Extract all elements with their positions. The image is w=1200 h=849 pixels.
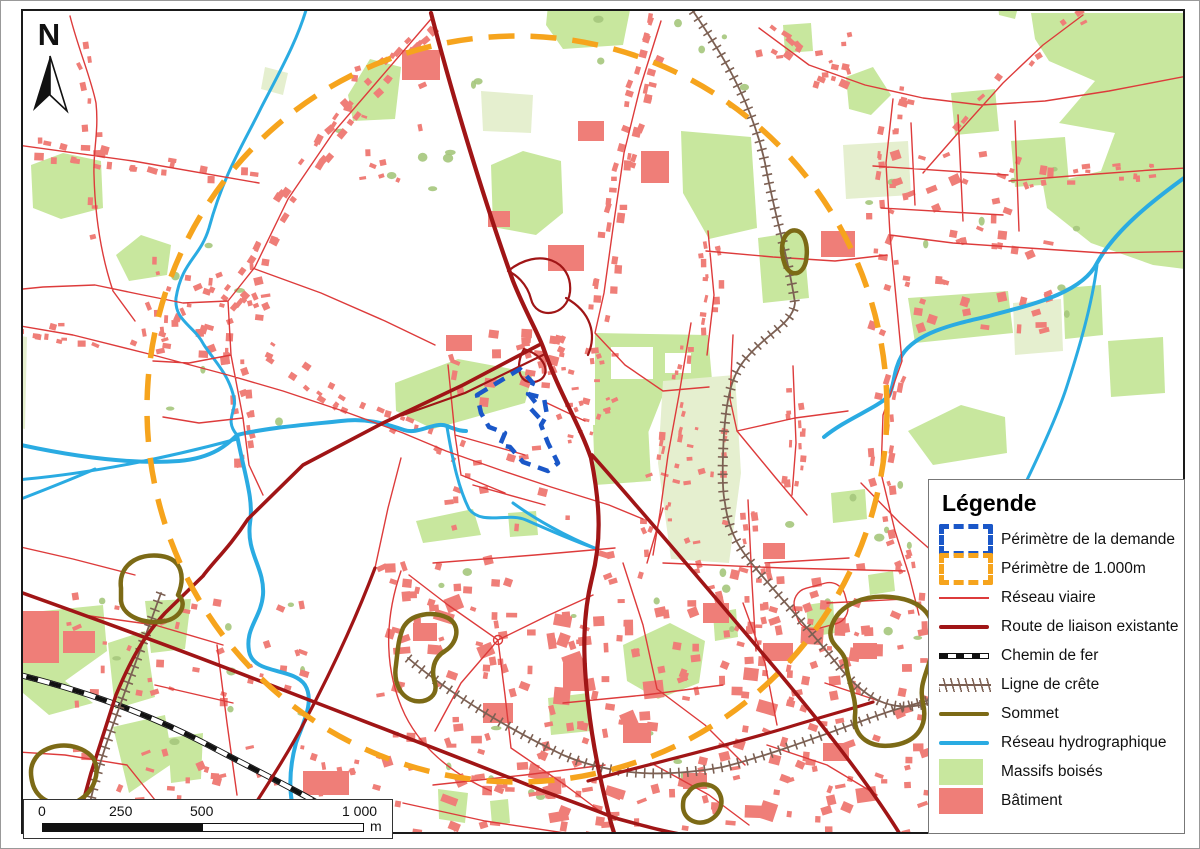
legend-item-sommet: Sommet: [929, 699, 1184, 728]
legend: Légende Périmètre de la demandePérimètre…: [928, 479, 1185, 834]
legend-symbol-sommet-icon: [939, 712, 989, 716]
legend-item-perimetre-demande: Périmètre de la demande: [929, 525, 1184, 554]
north-label: N: [29, 17, 69, 53]
legend-items: Périmètre de la demandePérimètre de 1.00…: [929, 525, 1184, 815]
legend-item-reseau-hydrographique: Réseau hydrographique: [929, 728, 1184, 757]
scale-bar-rule: [42, 823, 364, 832]
north-arrow-icon: [29, 53, 73, 115]
legend-title: Légende: [942, 490, 1184, 517]
legend-symbol-route-liaison-existante-icon: [939, 625, 989, 629]
legend-symbol-massifs-boises-icon: [939, 759, 983, 785]
legend-symbol-perimetre-demande-icon: [939, 524, 993, 556]
legend-item-perimetre-1000m: Périmètre de 1.000m: [929, 554, 1184, 583]
legend-item-label: Ligne de crête: [1001, 676, 1099, 694]
scale-tick-1000: 1 000: [342, 803, 377, 819]
legend-item-ligne-de-crete: Ligne de crête: [929, 670, 1184, 699]
legend-item-label: Périmètre de la demande: [1001, 531, 1175, 549]
legend-item-label: Chemin de fer: [1001, 647, 1098, 665]
north-arrow: N: [29, 17, 85, 121]
legend-item-label: Réseau hydrographique: [1001, 734, 1166, 752]
legend-item-massifs-boises: Massifs boisés: [929, 757, 1184, 786]
legend-item-label: Sommet: [1001, 705, 1059, 723]
legend-item-batiment: Bâtiment: [929, 786, 1184, 815]
map-page: N 0 250 500 1 000 m Légende Périmètre de…: [0, 0, 1200, 849]
legend-item-route-liaison-existante: Route de liaison existante: [929, 612, 1184, 641]
legend-symbol-ligne-de-crete-icon: [939, 678, 991, 692]
scale-tick-0: 0: [38, 803, 46, 819]
legend-item-reseau-viaire: Réseau viaire: [929, 583, 1184, 612]
legend-item-label: Massifs boisés: [1001, 763, 1103, 781]
legend-symbol-reseau-hydrographique-icon: [939, 741, 989, 745]
legend-symbol-perimetre-1000m-icon: [939, 553, 993, 585]
legend-symbol-reseau-viaire-icon: [939, 597, 989, 599]
scale-tick-250: 250: [109, 803, 132, 819]
scale-tick-500: 500: [190, 803, 213, 819]
legend-symbol-batiment-icon: [939, 788, 983, 814]
legend-item-chemin-de-fer: Chemin de fer: [929, 641, 1184, 670]
legend-symbol-chemin-de-fer-icon: [939, 653, 989, 659]
legend-item-label: Réseau viaire: [1001, 589, 1096, 607]
legend-item-label: Périmètre de 1.000m: [1001, 560, 1146, 578]
legend-item-label: Route de liaison existante: [1001, 618, 1179, 636]
legend-item-label: Bâtiment: [1001, 792, 1062, 810]
scale-bar: 0 250 500 1 000 m: [23, 799, 393, 839]
scale-unit: m: [370, 818, 382, 834]
